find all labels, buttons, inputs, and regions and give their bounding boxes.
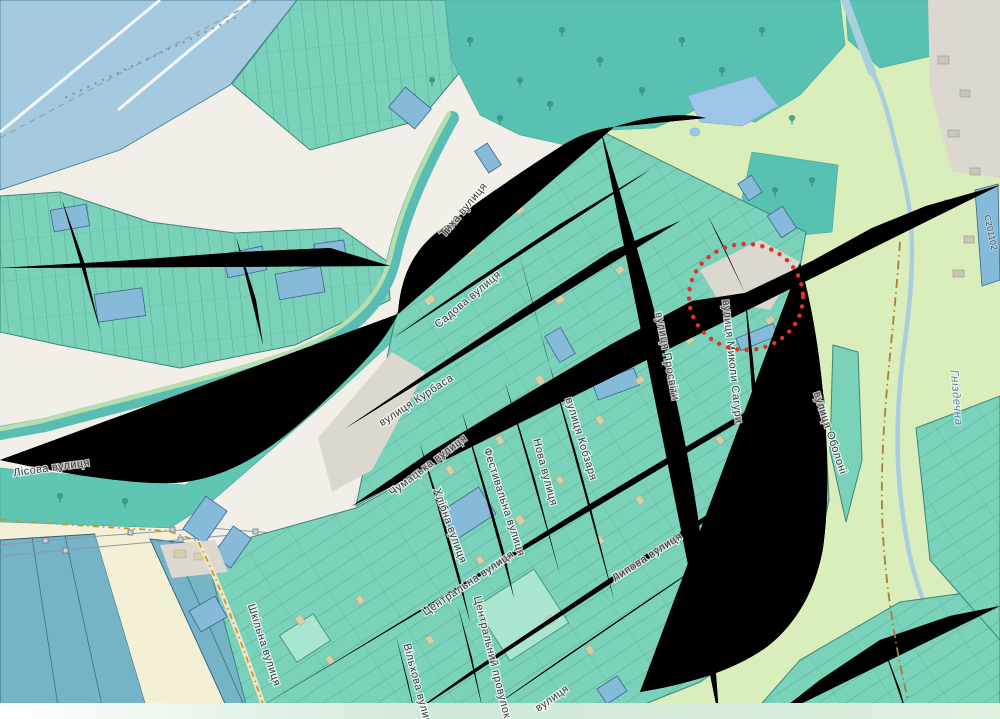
map-image: Тиха вулицяСадова вулицявулиця КурбасаЧу… bbox=[0, 0, 1000, 719]
map-canvas[interactable]: Тиха вулицяСадова вулицявулиця КурбасаЧу… bbox=[0, 0, 1000, 719]
